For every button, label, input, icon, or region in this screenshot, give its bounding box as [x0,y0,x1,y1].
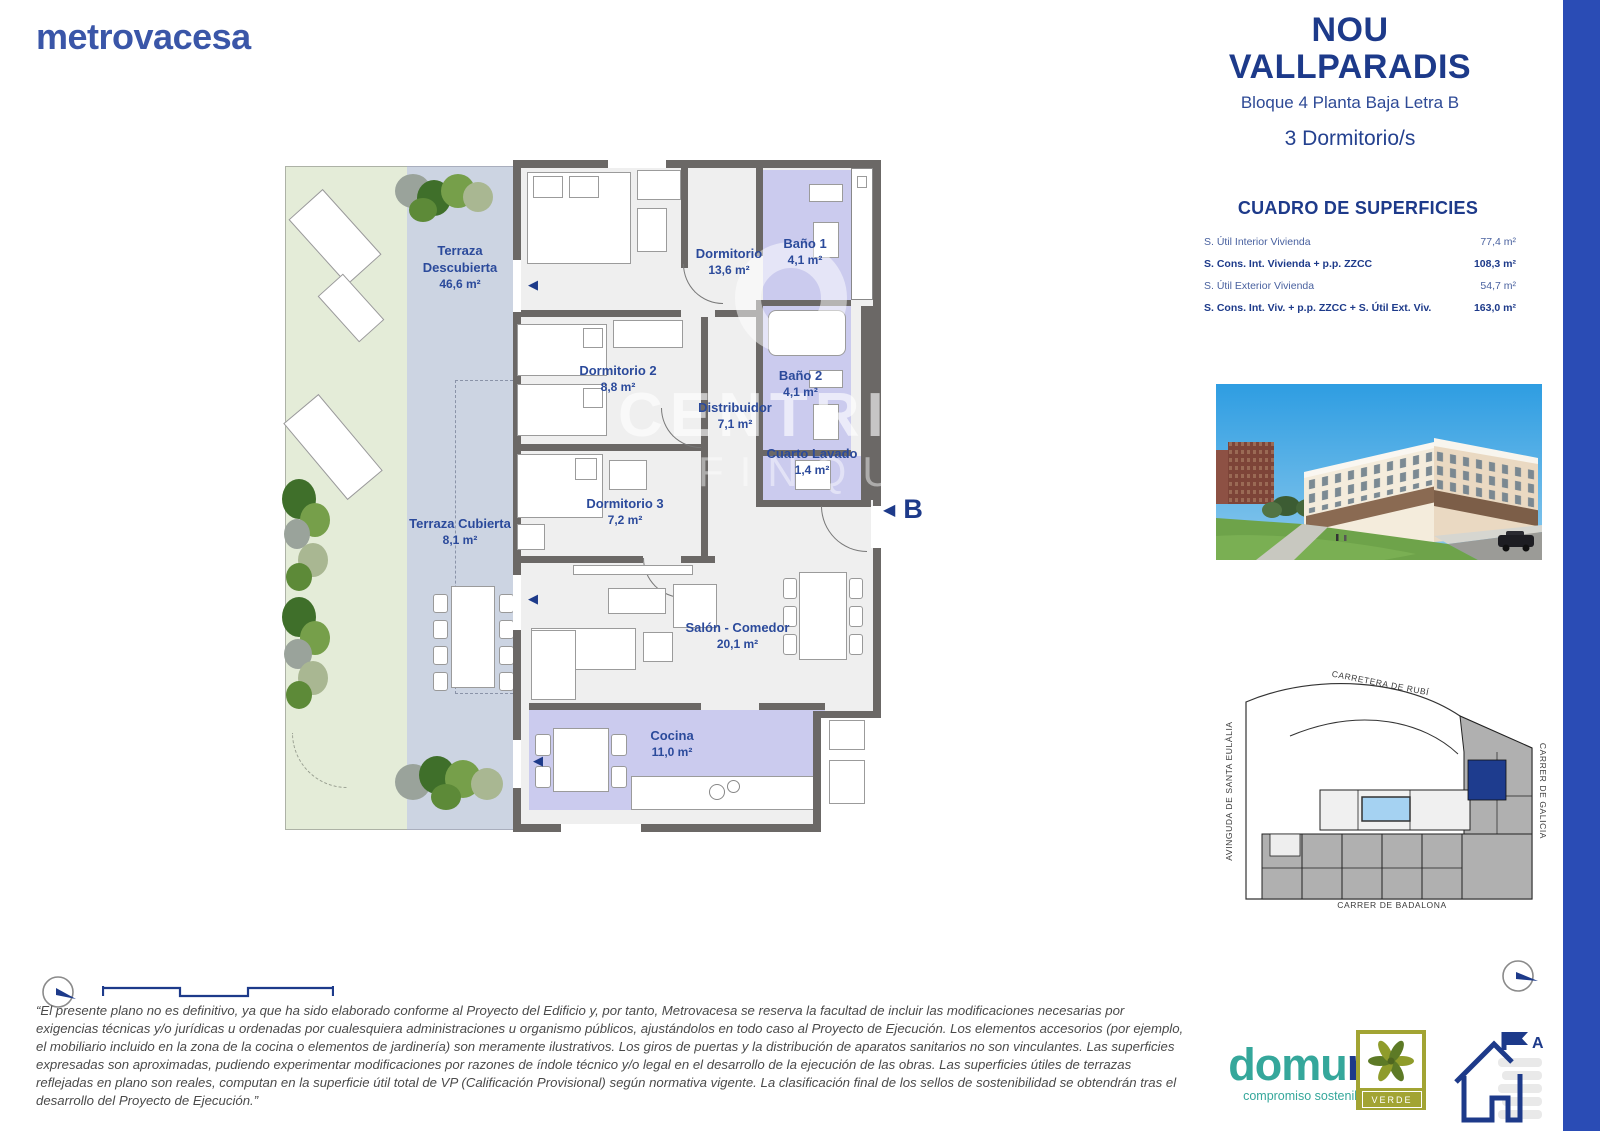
surface-row-value: 77,4 m² [1480,236,1518,248]
tv-sideboard [573,565,693,575]
side-table [643,632,673,662]
garden-gate-arc [292,733,347,788]
surface-row-label: S. Cons. Int. Viv. + p.p. ZZCC + S. Útil… [1204,302,1431,314]
room-label-bano2: Baño 24,1 m² [753,368,848,400]
window-marker-icon: ◀ [533,754,543,767]
floor-plan: CENTRIC FINQUES ◀ ◀ ◀ ◀ B Terraza Descub… [283,158,881,834]
dining-table [799,572,847,660]
pillow [533,176,563,198]
room-label-terraza-descubierta: Terraza Descubierta46,6 m² [411,243,509,292]
surface-row-value: 108,3 m² [1474,258,1518,270]
surface-row: S. Cons. Int. Vivienda + p.p. ZZCC 108,3… [1198,253,1518,275]
brochure-page: metrovacesa NOU VALLPARADIS Bloque 4 Pla… [0,0,1600,1131]
site-map: CARRETERA DE RUBÍ AVINGUDA DE SANTA EULÀ… [1212,656,1546,910]
verde-badge: VERDE [1356,1030,1426,1110]
right-accent-strip [1563,0,1600,1131]
unit-subtitle: Bloque 4 Planta Baja Letra B [1180,93,1520,113]
dining-chair [849,634,863,655]
surfaces-title: CUADRO DE SUPERFICIES [1198,198,1518,219]
surface-row: S. Cons. Int. Viv. + p.p. ZZCC + S. Útil… [1198,297,1518,319]
pool [1362,797,1410,821]
terrace-chair [499,594,514,613]
terrace-chair [433,594,448,613]
entry-arrow-icon: ◀ [883,500,895,520]
surface-row-value: 163,0 m² [1474,302,1518,314]
dining-chair [849,606,863,627]
terrace-chair [433,672,448,691]
bedrooms-line: 3 Dormitorio/s [1180,127,1520,151]
window-marker-icon: ◀ [528,592,538,605]
building-render [1216,384,1542,560]
pillow [569,176,599,198]
project-title-line1: NOU [1180,12,1520,49]
entry-letter: B [903,494,923,525]
compass-icon [1498,956,1540,998]
street-label-right: CARRER DE GALÍCIA [1538,743,1546,839]
wardrobe [613,320,683,348]
desk [609,460,647,490]
project-title-line2: VALLPARADIS [1180,49,1520,86]
pillow [575,458,597,480]
highlighted-unit [1468,760,1506,800]
disclaimer-text: “El presente plano no es definitivo, ya … [36,1002,1184,1110]
lounge-chair [288,189,381,285]
verde-leaf-panel [1360,1034,1422,1088]
counter-appliance [829,760,865,804]
surface-row-value: 54,7 m² [1480,280,1518,292]
street-label-left: AVINGUDA DE SANTA EULÀLIA [1224,721,1234,860]
window-marker-icon: ◀ [528,278,538,291]
energy-class-label: A [1532,1035,1544,1052]
coffee-table [608,588,666,614]
project-title-block: NOU VALLPARADIS Bloque 4 Planta Baja Let… [1180,12,1520,151]
entry-marker: ◀ B [883,494,923,525]
room-label-cuarto-lavado: Cuarto Lavado1,4 m² [753,446,871,478]
terrace-table [451,586,495,688]
lounge-chair [318,274,385,343]
stove-burner [727,780,740,793]
fridge [829,720,865,750]
energy-house-icon: A [1452,1022,1548,1126]
surface-row-label: S. Útil Interior Vivienda [1204,236,1311,248]
room-label-cocina: Cocina11,0 m² [612,728,732,760]
verde-leaf-icon [1360,1034,1422,1088]
room-label-distribuidor: Distribuidor7,1 m² [675,400,795,432]
domum-text-teal: domu [1228,1039,1346,1090]
room-label-dormitorio3: Dormitorio 37,2 m² [570,496,680,528]
dining-chair [849,578,863,599]
stove-burner [709,784,725,800]
terrace-chair [499,672,514,691]
pillow [583,328,603,348]
surface-row: S. Útil Interior Vivienda 77,4 m² [1198,231,1518,253]
terrace-chair [433,620,448,639]
surface-row: S. Útil Exterior Vivienda 54,7 m² [1198,275,1518,297]
garden-area [285,166,409,830]
surfaces-table: CUADRO DE SUPERFICIES S. Útil Interior V… [1198,198,1518,319]
verde-label: VERDE [1362,1091,1422,1108]
sink [809,184,843,202]
terrace-chair [433,646,448,665]
surface-row-label: S. Útil Exterior Vivienda [1204,280,1314,292]
room-label-terraza-cubierta: Terraza Cubierta8,1 m² [405,516,515,548]
room-label-bano1: Baño 14,1 m² [760,236,850,268]
street-label-bottom: CARRER DE BADALONA [1337,900,1447,910]
scale-bar [102,984,334,1000]
wardrobe [637,208,667,252]
dining-chair [783,578,797,599]
terrace-chair [499,620,514,639]
nightstand [517,524,545,550]
surface-row-label: S. Cons. Int. Vivienda + p.p. ZZCC [1204,258,1372,270]
terrace-chair [499,646,514,665]
metrovacesa-logo: metrovacesa [36,16,251,58]
sofa-chaise [531,630,576,700]
kitchen-table [553,728,609,792]
room-label-dormitorio2: Dormitorio 28,8 m² [558,363,678,395]
kitchen-chair [611,766,627,788]
room-label-salon-comedor: Salón - Comedor20,1 m² [685,620,790,652]
wardrobe [637,170,681,200]
kitchen-chair [535,766,551,788]
